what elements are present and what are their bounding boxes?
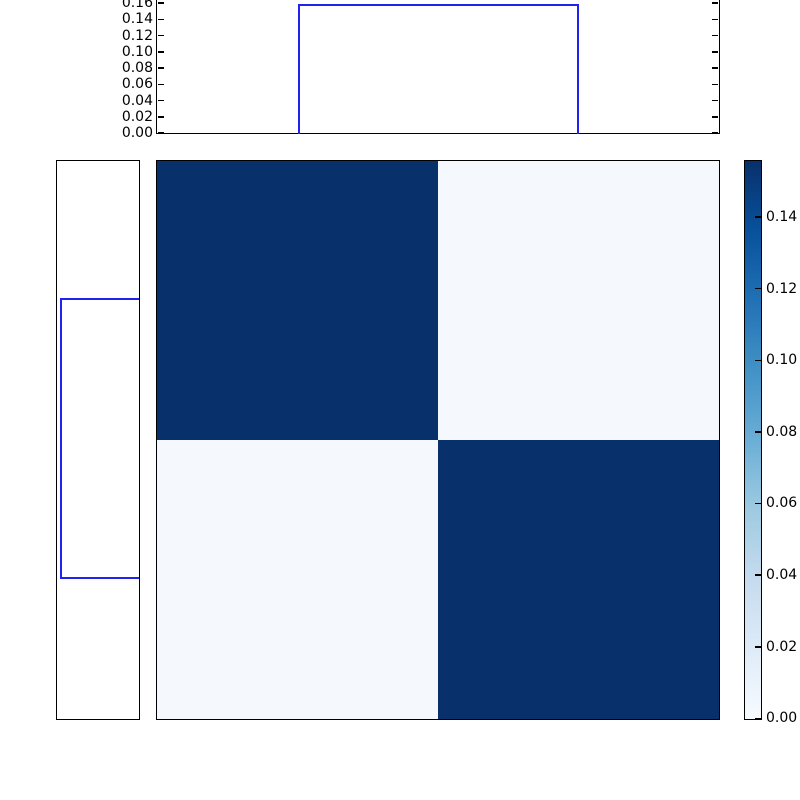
y-tick-label: 0.12 — [100, 29, 153, 43]
y-tick — [158, 2, 164, 4]
colorbar-tick-label: 0.10 — [766, 352, 800, 368]
heatmap-cell-0-1 — [438, 161, 719, 440]
colorbar-tick-label: 0.06 — [766, 495, 800, 511]
y-tick — [712, 19, 718, 21]
y-tick — [712, 84, 718, 86]
joint-heatmap-figure: 0.16 0.14 0.12 0.10 0.08 0.06 0.04 0.02 … — [0, 0, 800, 800]
y-tick — [158, 100, 164, 102]
colorbar-tick — [755, 503, 761, 505]
y-tick — [158, 51, 164, 53]
heatmap — [156, 160, 720, 720]
y-tick-label: 0.08 — [100, 61, 153, 75]
left-histogram-step-bar — [60, 298, 139, 579]
y-tick-label: 0.14 — [100, 12, 153, 26]
heatmap-cell-0-0 — [157, 161, 438, 440]
heatmap-cell-1-0 — [157, 440, 438, 719]
colorbar-tick — [755, 288, 761, 290]
y-tick-label: 0.16 — [100, 0, 153, 10]
y-tick — [158, 19, 164, 21]
y-tick — [712, 51, 718, 53]
colorbar-tick — [755, 216, 761, 218]
colorbar-tick — [755, 574, 761, 576]
y-tick-label: 0.06 — [100, 77, 153, 91]
y-tick — [712, 2, 718, 4]
colorbar-tick — [755, 718, 761, 720]
colorbar-tick-label: 0.12 — [766, 281, 800, 297]
y-tick — [712, 116, 718, 118]
y-tick — [158, 67, 164, 69]
colorbar-tick-label: 0.08 — [766, 424, 800, 440]
colorbar-tick-label: 0.04 — [766, 567, 800, 583]
y-tick — [712, 132, 718, 134]
y-tick-label: 0.00 — [100, 126, 153, 140]
y-tick — [158, 35, 164, 37]
y-tick — [712, 35, 718, 37]
y-tick — [158, 132, 164, 134]
y-tick — [712, 100, 718, 102]
y-tick-label: 0.10 — [100, 45, 153, 59]
heatmap-cell-1-1 — [438, 440, 719, 719]
y-tick — [158, 84, 164, 86]
top-histogram-step-bar — [298, 4, 579, 134]
colorbar — [744, 160, 762, 720]
colorbar-tick-label: 0.14 — [766, 209, 800, 225]
colorbar-tick — [755, 360, 761, 362]
colorbar-tick-label: 0.00 — [766, 710, 800, 726]
y-tick-label: 0.02 — [100, 110, 153, 124]
colorbar-tick-label: 0.02 — [766, 639, 800, 655]
y-tick — [158, 116, 164, 118]
y-tick — [712, 67, 718, 69]
colorbar-tick — [755, 431, 761, 433]
colorbar-tick — [755, 646, 761, 648]
y-tick-label: 0.04 — [100, 94, 153, 108]
